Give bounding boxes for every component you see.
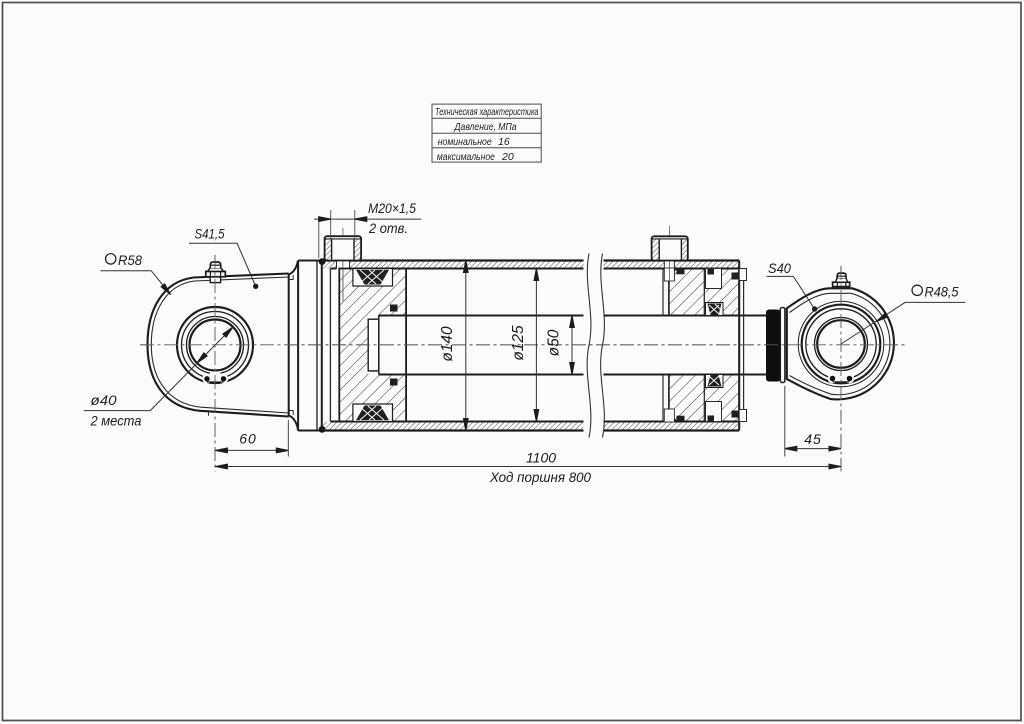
svg-text:ø40: ø40 — [91, 392, 117, 408]
svg-text:1100: 1100 — [526, 449, 556, 465]
svg-text:S41,5: S41,5 — [195, 225, 225, 241]
svg-text:ø140: ø140 — [439, 326, 456, 362]
svg-text:45: 45 — [804, 431, 822, 447]
svg-text:Давление, МПа: Давление, МПа — [454, 121, 517, 133]
svg-text:60: 60 — [239, 430, 257, 446]
svg-text:Ход поршня 800: Ход поршня 800 — [489, 470, 591, 485]
svg-text:максимальное: максимальное — [437, 151, 495, 163]
svg-text:16: 16 — [498, 136, 510, 148]
svg-text:R58: R58 — [118, 252, 142, 268]
svg-text:2 отв.: 2 отв. — [368, 221, 408, 236]
svg-text:R48,5: R48,5 — [925, 284, 959, 300]
svg-text:ø125: ø125 — [510, 325, 527, 361]
svg-text:2 места: 2 места — [90, 412, 142, 428]
svg-text:20: 20 — [501, 151, 514, 163]
svg-text:ø50: ø50 — [546, 329, 563, 356]
svg-text:Техническая характеристика: Техническая характеристика — [435, 107, 539, 118]
svg-text:номинальное: номинальное — [438, 136, 492, 148]
svg-text:M20×1,5: M20×1,5 — [368, 201, 416, 216]
svg-text:S40: S40 — [768, 260, 791, 276]
